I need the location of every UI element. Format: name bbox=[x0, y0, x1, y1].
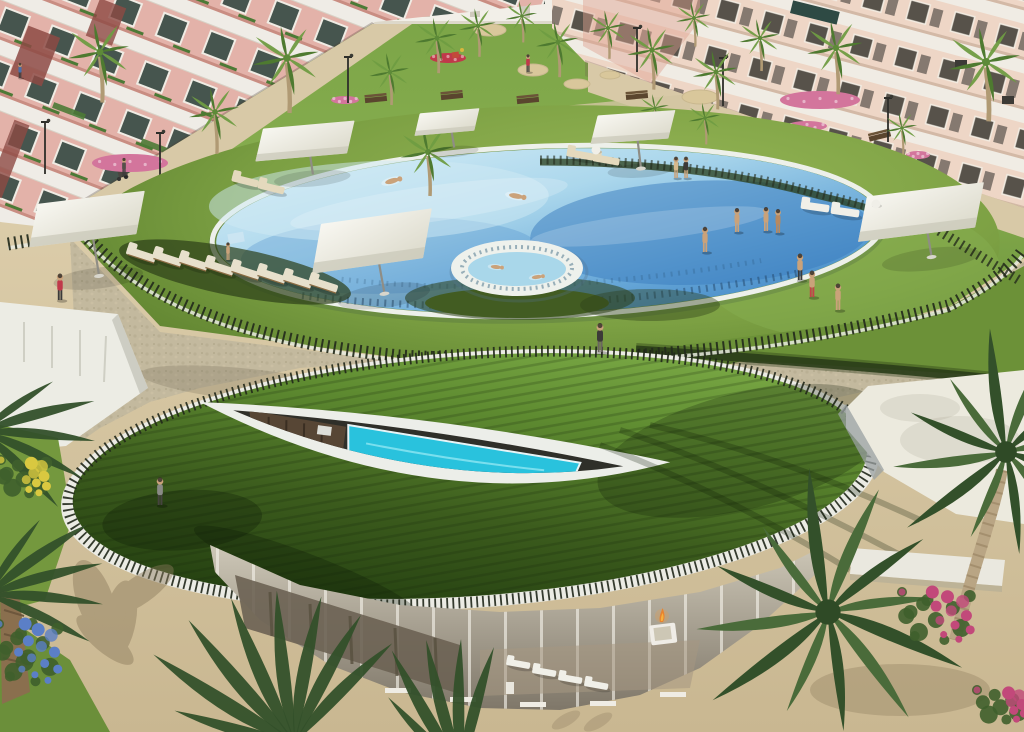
sand-patch bbox=[518, 64, 548, 76]
sand-patch bbox=[600, 71, 620, 79]
deck-table bbox=[317, 425, 332, 436]
flower-bed bbox=[780, 91, 860, 109]
sand-patch bbox=[682, 90, 718, 104]
flower-bed bbox=[92, 154, 168, 172]
flower-bed bbox=[430, 53, 466, 63]
sand-patch bbox=[564, 79, 590, 89]
pool-ladder bbox=[506, 682, 514, 694]
render-image: Aerial 3D architectural render: resort a… bbox=[0, 0, 1024, 732]
flower-bed bbox=[331, 96, 359, 104]
